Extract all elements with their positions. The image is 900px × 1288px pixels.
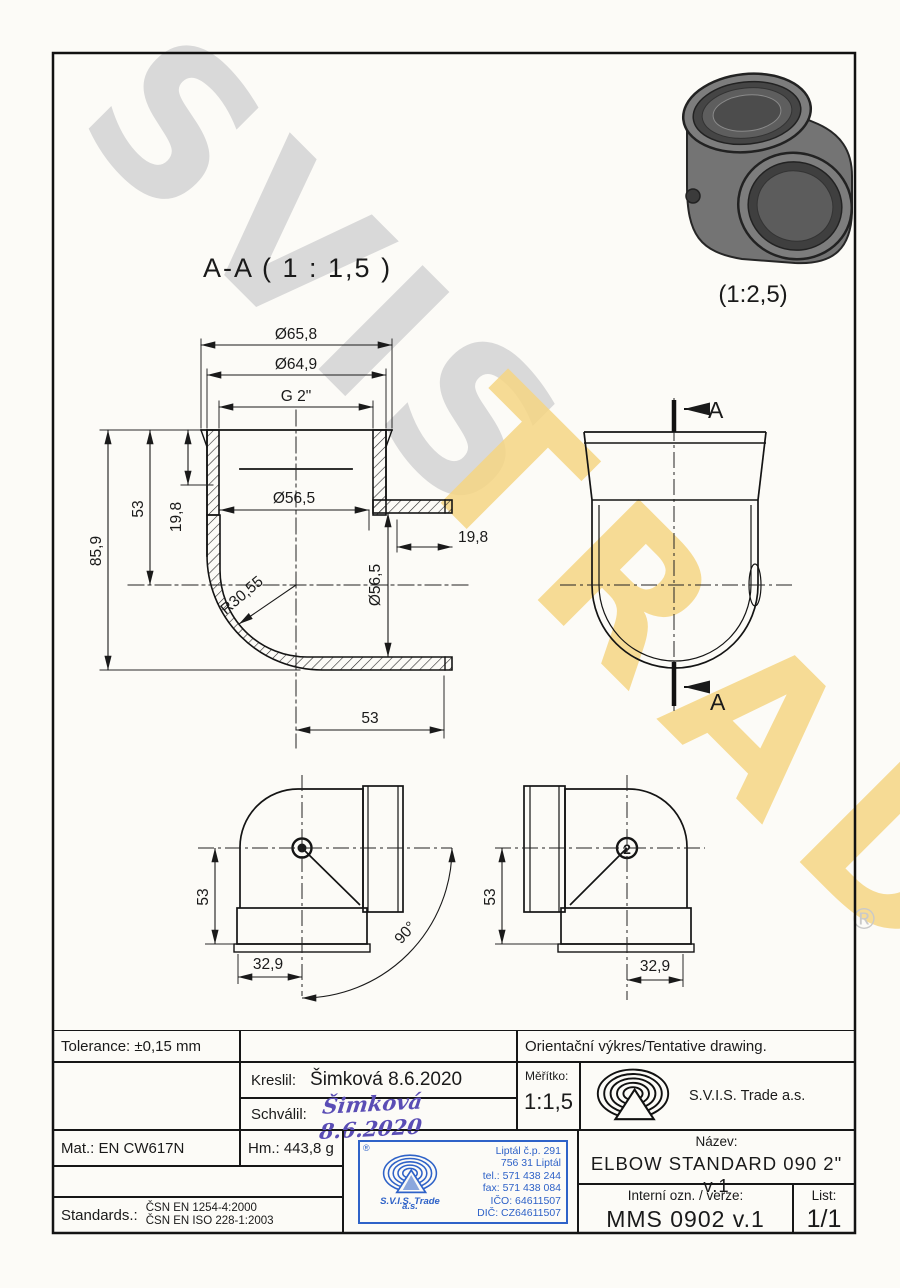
drawing-sheet: SVIS TRADE ® (0, 0, 900, 1288)
dim-total-height: 85,9 (88, 536, 105, 566)
interni-value: MMS 0902 v.1 (579, 1206, 792, 1233)
elbow-screw (686, 189, 700, 203)
list-cell: List: 1/1 (793, 1184, 855, 1233)
dim-bore-side: Ø56,5 (367, 564, 384, 606)
meritko-cell: Měřítko: 1:1,5 (517, 1062, 580, 1130)
top-view-right: 2 53 32,9 (482, 775, 705, 1000)
cut-mark-top: A (708, 397, 724, 423)
standards-label: Standards.: (61, 1207, 138, 1224)
dim-height-53: 53 (130, 500, 147, 517)
empty-cell-top (240, 1030, 517, 1062)
section-title: A-A ( 1 : 1,5 ) (203, 253, 392, 283)
standards-line2: ČSN EN ISO 228-1:2003 (146, 1215, 274, 1228)
material-text: Mat.: EN CW617N (54, 1131, 239, 1163)
product-photo: (1:2,5) (679, 68, 863, 308)
stamp-address2: 756 31 Liptál (454, 1157, 561, 1170)
dim-bore-top: Ø56,5 (273, 490, 315, 507)
company-name: S.V.I.S. Trade a.s. (689, 1088, 805, 1104)
stamp-address1: Liptál č.p. 291 (454, 1145, 561, 1158)
stamp-logo (379, 1154, 441, 1196)
stamp-registered: ® (363, 1143, 370, 1153)
photo-scale-label: (1:2,5) (718, 281, 787, 308)
title-block: Tolerance: ±0,15 mm Orientační výkres/Te… (53, 1030, 855, 1233)
standards-lines: ČSN EN 1254-4:2000 ČSN EN ISO 228-1:2003 (146, 1202, 274, 1228)
stamp-logo-block: S.V.I.S. Trade a.s. (360, 1154, 454, 1211)
weight-text: Hm.: 443,8 g (241, 1131, 342, 1163)
top-view-left: 53 32,9 90° (195, 775, 452, 998)
cut-mark-bottom: A (710, 689, 726, 715)
tolerance-text: Tolerance: ±0,15 mm (54, 1031, 239, 1061)
dim-tv-angle: 90° (391, 919, 419, 948)
stamp-fax: fax: 571 438 084 (454, 1182, 561, 1195)
list-label: List: (794, 1188, 854, 1203)
svis-logo (591, 1068, 675, 1124)
stamp-ico: IČO: 64611507 (454, 1195, 561, 1208)
tentative-drawing-cell: Orientační výkres/Tentative drawing. (517, 1030, 855, 1062)
weight-cell: Hm.: 443,8 g (240, 1130, 343, 1166)
company-stamp: ® S.V.I.S. Trade a.s. (358, 1140, 568, 1224)
dim-tv-left-53: 53 (195, 888, 212, 905)
material-cell: Mat.: EN CW617N (53, 1130, 240, 1166)
standards-line1: ČSN EN 1254-4:2000 (146, 1202, 274, 1215)
schvalil-cell: Schválil: Šimková 8.6.2020 (240, 1098, 517, 1130)
dim-dia-mid: Ø64,9 (275, 356, 317, 373)
stamp-dic: DIČ: CZ64611507 (454, 1207, 561, 1220)
meritko-value: 1:1,5 (518, 1089, 579, 1115)
dim-inner-radius: R30,55 (217, 573, 266, 618)
stamp-address-block: Liptál č.p. 291 756 31 Liptál tel.: 571 … (454, 1145, 566, 1220)
list-value: 1/1 (794, 1205, 854, 1234)
dim-tv-right-53: 53 (482, 888, 499, 905)
dim-width-53: 53 (361, 710, 378, 727)
stamp-cell: ® S.V.I.S. Trade a.s. (343, 1130, 578, 1233)
side-view: A A (560, 397, 795, 715)
meritko-label: Měřítko: (518, 1063, 579, 1083)
dim-tv-right-329: 32,9 (640, 958, 670, 975)
standards-cell: Standards.: ČSN EN 1254-4:2000 ČSN EN IS… (53, 1197, 343, 1233)
dim-tv-left-329: 32,9 (253, 956, 283, 973)
tentative-drawing-text: Orientační výkres/Tentative drawing. (518, 1031, 854, 1061)
dim-thread: G 2" (281, 388, 312, 405)
dim-socket-depth-right: 19,8 (458, 529, 488, 546)
nazev-label: Název: (579, 1134, 854, 1149)
dim-socket-depth: 19,8 (168, 502, 185, 532)
stamp-tel: tel.: 571 438 244 (454, 1170, 561, 1183)
section-view: Ø65,8 Ø64,9 G 2" 85,9 53 19,8 Ø56,5 Ø56,… (88, 326, 488, 748)
company-cell: S.V.I.S. Trade a.s. (580, 1062, 855, 1130)
kreslil-label: Kreslil: (251, 1072, 296, 1089)
empty-cell-bottom (53, 1166, 343, 1197)
dim-dia-outer: Ø65,8 (275, 326, 317, 343)
nazev-cell: Název: ELBOW STANDARD 090 2" v.1 (578, 1130, 855, 1184)
empty-cell-left (53, 1062, 240, 1130)
interni-label: Interní ozn. / verze: (579, 1188, 792, 1203)
schvalil-label: Schválil: (251, 1106, 307, 1123)
tolerance-cell: Tolerance: ±0,15 mm (53, 1030, 240, 1062)
interni-cell: Interní ozn. / verze: MMS 0902 v.1 (578, 1184, 793, 1233)
